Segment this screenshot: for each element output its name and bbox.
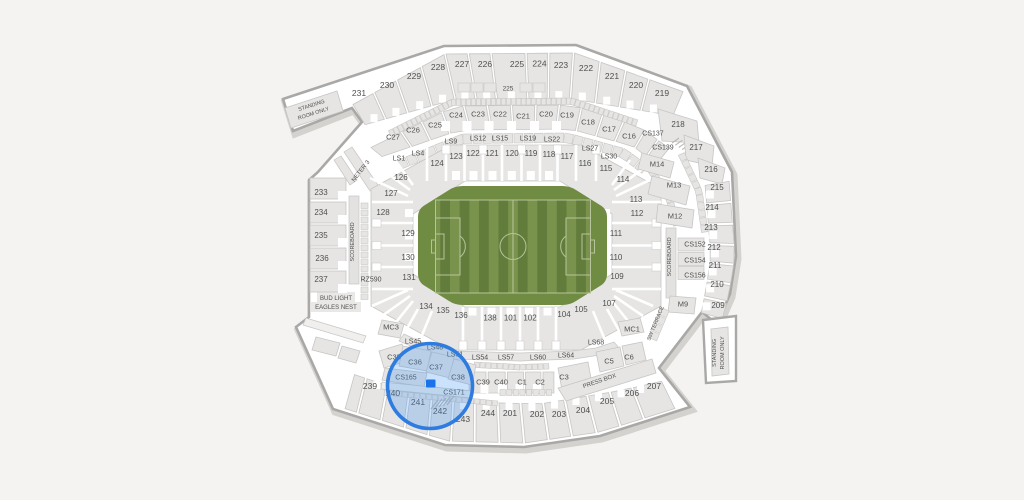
svg-text:131: 131 [402,273,416,282]
svg-text:123: 123 [449,152,463,161]
svg-text:102: 102 [523,313,537,322]
svg-text:127: 127 [384,189,398,198]
svg-text:LS4: LS4 [412,150,425,157]
svg-text:C39: C39 [476,378,490,387]
svg-text:114: 114 [617,175,630,184]
svg-text:LS68: LS68 [588,339,604,346]
svg-text:C20: C20 [539,110,553,119]
svg-text:231: 231 [352,88,366,98]
svg-text:233: 233 [314,188,328,197]
svg-text:126: 126 [394,173,408,182]
svg-text:218: 218 [671,120,685,129]
svg-text:207: 207 [647,381,661,391]
svg-text:136: 136 [454,311,468,320]
svg-text:204: 204 [576,405,590,415]
svg-text:138: 138 [483,313,497,322]
svg-text:224: 224 [532,59,546,69]
svg-text:225: 225 [510,59,524,69]
svg-text:C27: C27 [386,133,400,142]
svg-text:C17: C17 [602,125,616,134]
svg-text:225: 225 [503,85,514,92]
svg-text:104: 104 [557,310,571,319]
svg-text:112: 112 [631,209,644,218]
svg-text:LS64: LS64 [558,352,574,359]
svg-text:117: 117 [561,152,574,161]
svg-text:122: 122 [466,149,480,158]
svg-text:LS1: LS1 [393,155,406,162]
svg-text:203: 203 [552,409,566,419]
svg-text:220: 220 [629,80,643,90]
svg-text:222: 222 [579,63,593,73]
svg-text:230: 230 [380,80,394,90]
svg-text:CS156: CS156 [684,272,706,279]
svg-text:216: 216 [704,165,718,174]
svg-text:C2: C2 [535,378,545,387]
svg-text:118: 118 [543,150,556,159]
svg-text:244: 244 [481,408,495,418]
svg-text:115: 115 [600,164,613,173]
svg-text:223: 223 [554,60,568,70]
svg-text:C6: C6 [624,353,634,362]
svg-text:CS154: CS154 [684,257,706,264]
svg-text:229: 229 [407,71,421,81]
svg-text:209: 209 [711,301,725,310]
svg-text:MC1: MC1 [624,325,640,334]
svg-text:CS139: CS139 [652,144,674,151]
svg-text:201: 201 [503,408,517,418]
svg-text:MC3: MC3 [383,323,399,332]
svg-text:C16: C16 [622,132,636,141]
svg-text:110: 110 [610,253,623,262]
svg-text:SCOREBOARD: SCOREBOARD [350,222,356,261]
svg-text:M14: M14 [650,160,665,169]
svg-text:LS19: LS19 [520,135,536,142]
svg-text:STANDING: STANDING [712,339,718,367]
svg-text:C25: C25 [428,121,442,130]
svg-text:215: 215 [710,183,724,192]
svg-text:130: 130 [401,253,415,262]
svg-text:BUD LIGHT: BUD LIGHT [320,296,352,302]
svg-text:235: 235 [314,231,328,240]
svg-text:217: 217 [689,143,703,152]
svg-text:239: 239 [363,381,377,391]
svg-text:ROOM ONLY: ROOM ONLY [720,336,726,370]
svg-text:214: 214 [705,203,719,212]
svg-text:226: 226 [478,59,492,69]
svg-text:101: 101 [504,313,518,322]
svg-text:LS9: LS9 [445,138,458,145]
svg-text:M9: M9 [678,300,688,309]
svg-text:219: 219 [655,88,669,98]
svg-text:LS54: LS54 [472,354,488,361]
svg-text:LS27: LS27 [582,145,598,152]
svg-text:212: 212 [707,243,721,252]
svg-text:EAGLES NEST: EAGLES NEST [315,305,357,311]
svg-text:C22: C22 [493,110,507,119]
svg-text:205: 205 [600,396,614,406]
svg-text:LS15: LS15 [492,135,508,142]
svg-text:M12: M12 [668,212,683,221]
svg-text:128: 128 [376,208,390,217]
svg-text:C18: C18 [581,118,595,127]
svg-text:CS152: CS152 [684,241,706,248]
svg-text:LS30: LS30 [601,153,617,160]
svg-text:C1: C1 [517,378,527,387]
svg-text:RZ590: RZ590 [360,276,381,283]
svg-text:116: 116 [579,159,592,168]
svg-text:237: 237 [314,275,328,284]
svg-text:111: 111 [610,229,623,238]
svg-text:C26: C26 [406,126,420,135]
svg-text:211: 211 [709,261,722,270]
svg-text:124: 124 [430,159,444,168]
svg-text:LS60: LS60 [530,354,546,361]
svg-text:228: 228 [431,62,445,72]
svg-text:C19: C19 [560,111,574,120]
svg-text:C21: C21 [516,112,530,121]
svg-text:CS137: CS137 [642,130,664,137]
svg-text:C24: C24 [449,111,463,120]
svg-text:105: 105 [574,305,588,314]
svg-text:107: 107 [602,299,616,308]
svg-text:210: 210 [710,280,724,289]
svg-text:202: 202 [530,409,544,419]
svg-text:113: 113 [630,195,643,204]
svg-text:LS22: LS22 [544,136,560,143]
svg-text:109: 109 [610,272,624,281]
svg-text:SCOREBOARD: SCOREBOARD [667,237,673,276]
svg-text:LS12: LS12 [470,135,486,142]
svg-text:236: 236 [315,254,329,263]
svg-text:120: 120 [505,149,519,158]
svg-text:LS57: LS57 [498,354,514,361]
svg-text:234: 234 [314,208,328,217]
svg-text:C40: C40 [494,378,508,387]
svg-text:135: 135 [436,306,450,315]
svg-text:121: 121 [485,149,499,158]
svg-text:C23: C23 [471,110,485,119]
svg-text:206: 206 [625,388,639,398]
svg-text:221: 221 [605,71,619,81]
svg-text:C3: C3 [559,373,569,382]
svg-text:213: 213 [704,223,718,232]
svg-text:C5: C5 [604,357,614,366]
svg-text:M13: M13 [667,181,682,190]
svg-text:227: 227 [455,59,469,69]
svg-text:134: 134 [419,302,433,311]
svg-text:129: 129 [401,229,415,238]
svg-text:119: 119 [525,149,538,158]
